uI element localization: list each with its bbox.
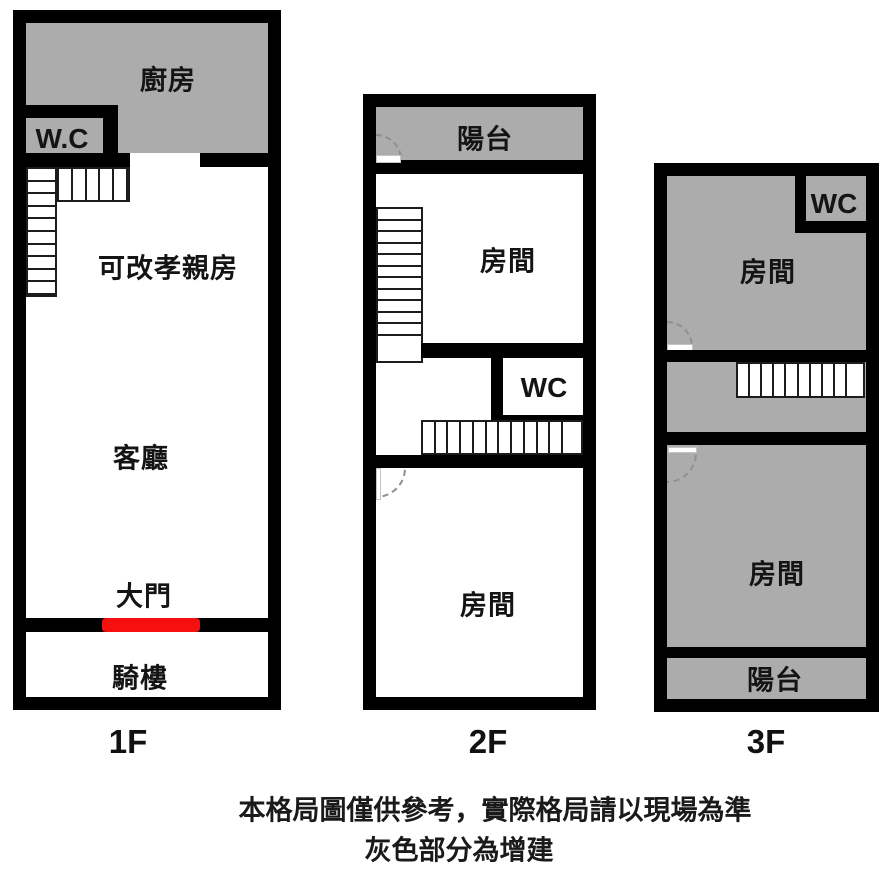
kitchen-lower-wall-right-1f [200, 153, 268, 167]
mid-wall-2f [421, 343, 583, 358]
room-bottom-label-3f: 房間 [749, 553, 805, 592]
floorplan-1f: 廚房 W.C 可改孝親房 客廳 大門 騎樓 [13, 10, 281, 710]
wall-below-room-top-3f [667, 350, 866, 362]
room-top-label-2f: 房間 [480, 240, 536, 279]
floorplan-2f: 陽台 房間 WC 房間 [363, 94, 596, 710]
room-top-label-3f: 房間 [740, 251, 796, 290]
wc-label-2f: WC [521, 372, 568, 404]
wc-label-3f: WC [811, 188, 858, 220]
living-room-label-1f: 客廳 [113, 437, 169, 476]
wc-left-wall-3f [795, 176, 806, 221]
balcony-label-3f: 陽台 [747, 659, 803, 698]
arcade-label-1f: 騎樓 [112, 657, 168, 696]
room-door-leaf-2f [376, 468, 381, 500]
balcony-wall-2f [376, 160, 583, 174]
balcony-label-2f: 陽台 [457, 118, 513, 157]
wall-above-balcony-3f [667, 647, 866, 658]
staircase-1f-vertical-run [26, 167, 57, 297]
floor-tag-1f: 1F [109, 723, 148, 761]
balcony-door-leaf-2f [376, 155, 401, 163]
wc-left-wall-2f [491, 358, 503, 415]
kitchen-label-1f: 廚房 [140, 59, 196, 98]
floor-tag-2f: 2F [469, 723, 508, 761]
room-bottom-label-2f: 房間 [460, 584, 516, 623]
staircase-3f-horizontal-run [736, 362, 865, 398]
wc-bottom-wall-3f [795, 221, 866, 233]
staircase-2f-vertical-run [376, 207, 423, 363]
floor-tag-3f: 3F [747, 723, 786, 761]
room-bottom-area-3f [667, 445, 866, 647]
wall-below-stairs-3f [667, 432, 866, 445]
staircase-2f-horizontal-run [421, 420, 583, 455]
main-door-label-1f: 大門 [116, 575, 172, 614]
staircase-1f-horizontal-run [57, 167, 130, 202]
parents-room-label-1f: 可改孝親房 [98, 247, 238, 286]
kitchen-lower-wall-left-1f [26, 153, 130, 167]
wc-label-1f: W.C [36, 123, 89, 155]
floorplan-canvas: 廚房 W.C 可改孝親房 客廳 大門 騎樓 1F 陽台 房間 WC [0, 0, 889, 879]
floorplan-3f: WC 房間 房間 陽台 [654, 163, 879, 712]
room-divider-wall-2f [376, 455, 583, 468]
main-door-red-marker [102, 618, 200, 632]
disclaimer-caption: 本格局圖僅供參考，實際格局請以現場為準 [239, 789, 752, 828]
gray-area-note-caption: 灰色部分為增建 [365, 829, 554, 868]
